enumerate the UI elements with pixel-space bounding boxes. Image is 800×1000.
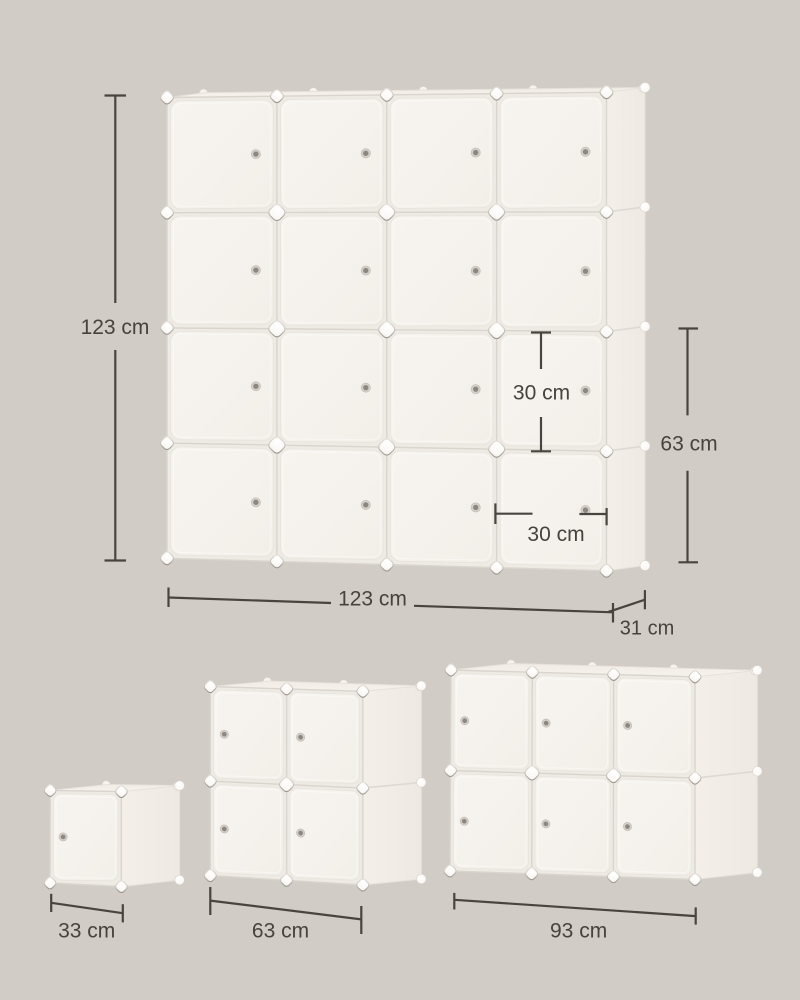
svg-text:123 cm: 123 cm: [81, 316, 150, 339]
svg-text:63 cm: 63 cm: [252, 919, 309, 942]
svg-text:93 cm: 93 cm: [550, 920, 607, 943]
svg-text:30 cm: 30 cm: [527, 523, 584, 546]
svg-text:123 cm: 123 cm: [338, 588, 407, 611]
svg-text:33 cm: 33 cm: [58, 920, 115, 943]
svg-text:31 cm: 31 cm: [620, 618, 674, 640]
svg-text:30 cm: 30 cm: [513, 382, 570, 405]
svg-text:63 cm: 63 cm: [660, 433, 717, 456]
